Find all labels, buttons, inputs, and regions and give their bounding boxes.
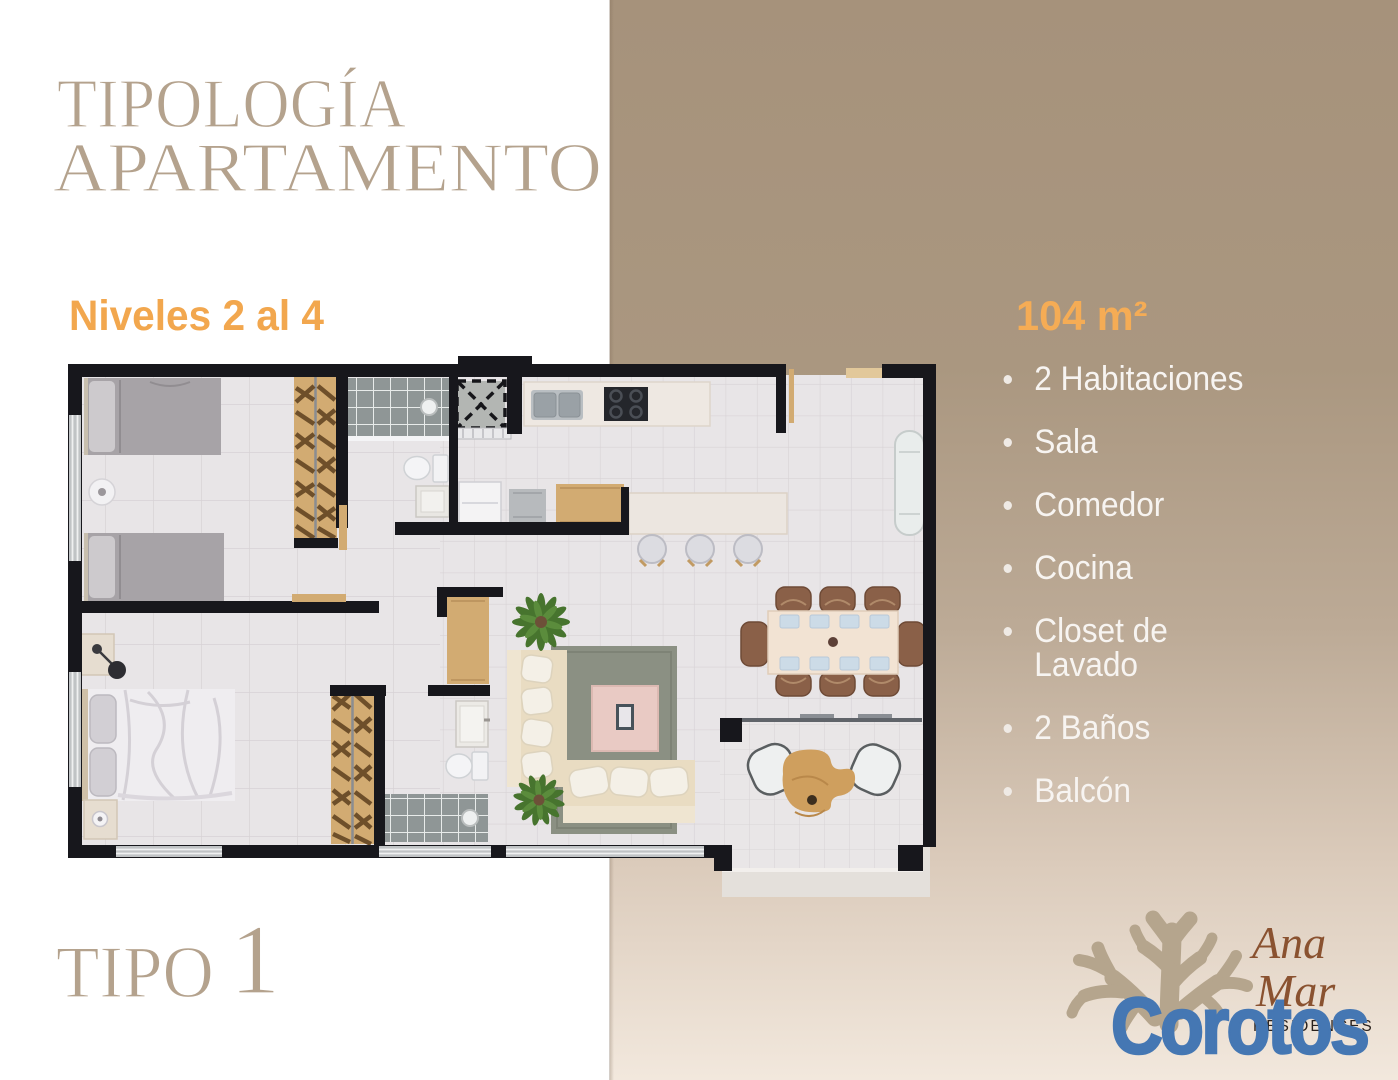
svg-text:Ana: Ana — [1249, 917, 1326, 968]
